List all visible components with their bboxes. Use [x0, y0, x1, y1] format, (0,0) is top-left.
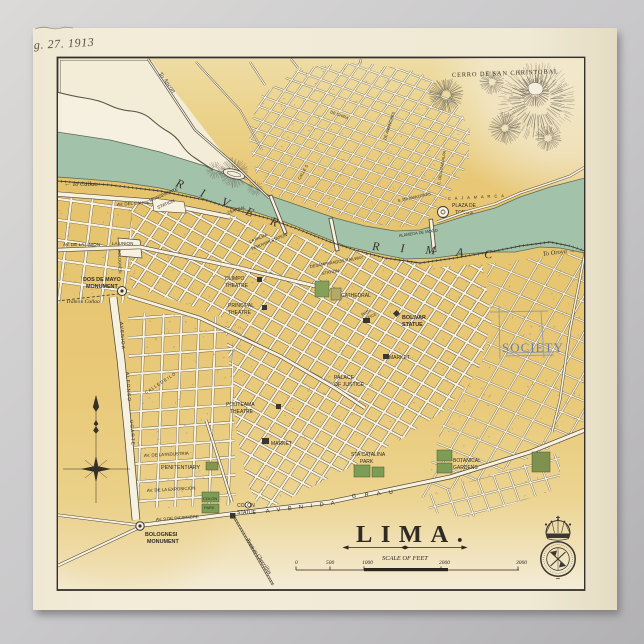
svg-text:500: 500 [326, 560, 335, 566]
svg-text:PLAZA DE: PLAZA DE [452, 203, 477, 209]
svg-text:GARDENS: GARDENS [453, 465, 478, 471]
svg-text:MARKET: MARKET [389, 355, 410, 361]
svg-text:MARKET: MARKET [271, 441, 292, 447]
svg-text:← To Callao: ← To Callao [64, 181, 98, 188]
svg-text:BOLOGNESI: BOLOGNESI [117, 250, 123, 274]
svg-text:STA CATALINA: STA CATALINA [351, 452, 386, 458]
svg-text:CATHEDRAL: CATHEDRAL [341, 293, 371, 299]
svg-text:COLON: COLON [203, 496, 217, 501]
svg-text:SCALE OF FEET: SCALE OF FEET [382, 555, 428, 562]
svg-text:PENITENTIARY: PENITENTIARY [161, 465, 201, 471]
svg-text:PARK: PARK [360, 459, 374, 465]
svg-text:Tram to Callao: Tram to Callao [66, 299, 100, 305]
svg-text:BOLOGNESI: BOLOGNESI [145, 532, 178, 538]
svg-text:3000: 3000 [515, 560, 527, 566]
svg-text:PARK: PARK [204, 505, 215, 510]
svg-text:BOTANICAL: BOTANICAL [453, 458, 481, 464]
svg-text:1000: 1000 [362, 560, 373, 566]
svg-text:DOS DE MAYO: DOS DE MAYO [83, 277, 121, 283]
svg-text:LIMA.: LIMA. [356, 521, 471, 548]
svg-text:MONUMENT: MONUMENT [86, 284, 118, 290]
svg-text:OF JUSTICE: OF JUSTICE [334, 382, 365, 388]
svg-text:OLIMPO: OLIMPO [225, 276, 245, 282]
svg-text:AV. DE LA UNION: AV. DE LA UNION [63, 242, 100, 247]
svg-text:PALACE: PALACE [334, 375, 355, 381]
svg-text:THEATRE: THEATRE [228, 310, 252, 316]
svg-text:STATUE: STATUE [402, 322, 423, 328]
svg-text:COLON: COLON [237, 503, 255, 509]
svg-text:THEATRE: THEATRE [225, 283, 249, 289]
svg-text:0: 0 [295, 560, 298, 566]
svg-text:POLITEAMA: POLITEAMA [226, 402, 255, 408]
svg-text:BOLIVAR: BOLIVAR [402, 315, 426, 321]
svg-text:LA UNION: LA UNION [112, 241, 133, 246]
svg-text:STATUE: STATUE [237, 510, 257, 516]
svg-text:THEATRE: THEATRE [230, 409, 254, 415]
svg-text:PRINCIPAL: PRINCIPAL [228, 303, 254, 309]
svg-text:MONUMENT: MONUMENT [147, 539, 179, 545]
svg-text:2000: 2000 [439, 560, 450, 566]
